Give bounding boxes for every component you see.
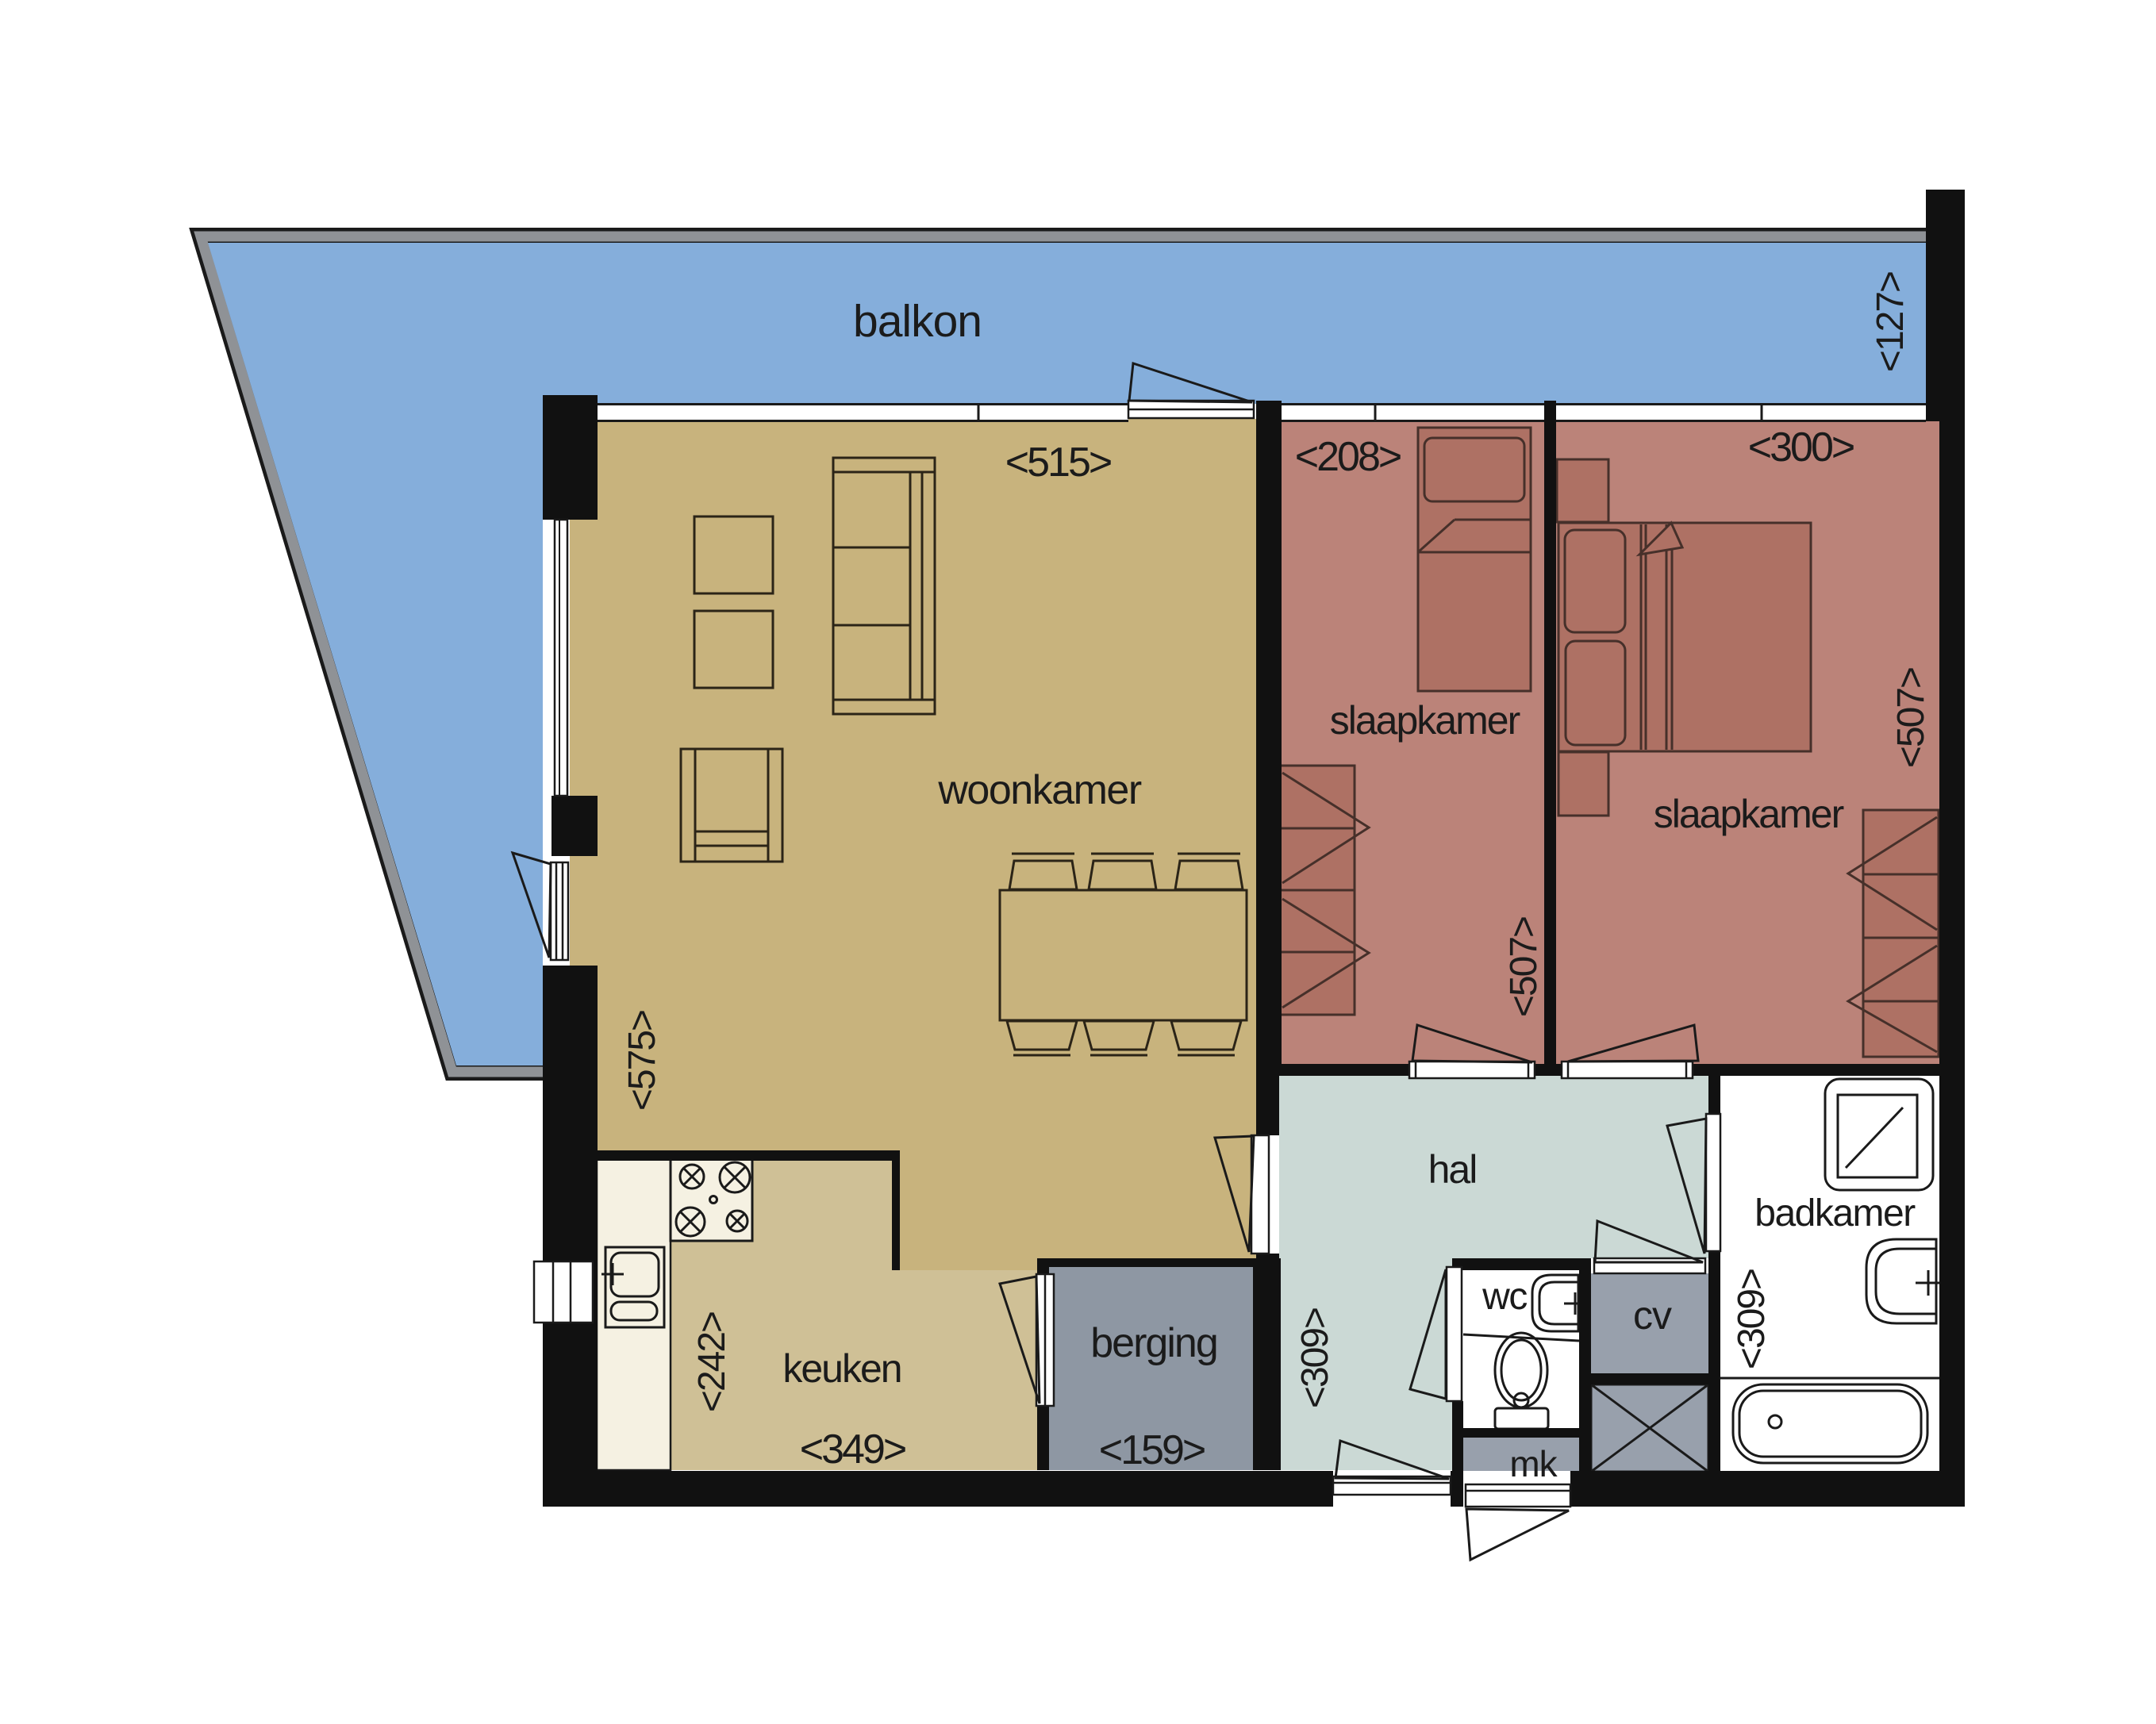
svg-text:<515>: <515> [1005,440,1111,486]
svg-text:<507>: <507> [1890,668,1932,768]
svg-text:<242>: <242> [691,1312,733,1412]
svg-text:hal: hal [1428,1147,1477,1192]
svg-text:woonkamer: woonkamer [937,767,1141,813]
svg-text:berging: berging [1090,1320,1216,1366]
svg-text:<127>: <127> [1870,272,1912,372]
svg-text:balkon: balkon [853,296,982,347]
svg-text:slaapkamer: slaapkamer [1330,698,1520,743]
svg-text:<507>: <507> [1503,917,1545,1017]
svg-text:<349>: <349> [800,1426,905,1473]
svg-text:<309>: <309> [1731,1269,1773,1369]
svg-text:<300>: <300> [1748,424,1854,470]
svg-text:cv: cv [1633,1293,1672,1338]
svg-text:wc: wc [1482,1276,1527,1318]
svg-text:<208>: <208> [1295,434,1401,480]
svg-text:<159>: <159> [1099,1427,1205,1473]
svg-text:<575>: <575> [621,1011,663,1111]
svg-text:badkamer: badkamer [1754,1192,1916,1234]
svg-text:<309>: <309> [1294,1308,1336,1408]
svg-text:keuken: keuken [782,1346,901,1391]
svg-text:slaapkamer: slaapkamer [1654,792,1844,836]
svg-text:mk: mk [1509,1443,1558,1484]
